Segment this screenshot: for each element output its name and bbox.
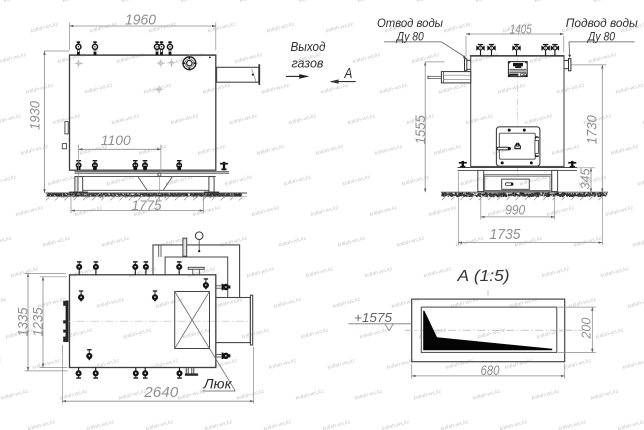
svg-text:1930: 1930: [27, 101, 42, 130]
svg-text:Ду 80: Ду 80: [395, 30, 424, 44]
svg-text:200: 200: [579, 318, 593, 340]
svg-text:1960: 1960: [125, 12, 157, 29]
svg-text:Люк: Люк: [202, 377, 232, 392]
svg-text:+1575: +1575: [354, 311, 392, 325]
svg-text:Ду 80: Ду 80: [586, 30, 615, 44]
svg-text:680: 680: [481, 363, 500, 378]
svg-text:2640: 2640: [143, 385, 178, 401]
svg-text:А: А: [344, 65, 353, 82]
svg-text:1735: 1735: [490, 227, 522, 243]
